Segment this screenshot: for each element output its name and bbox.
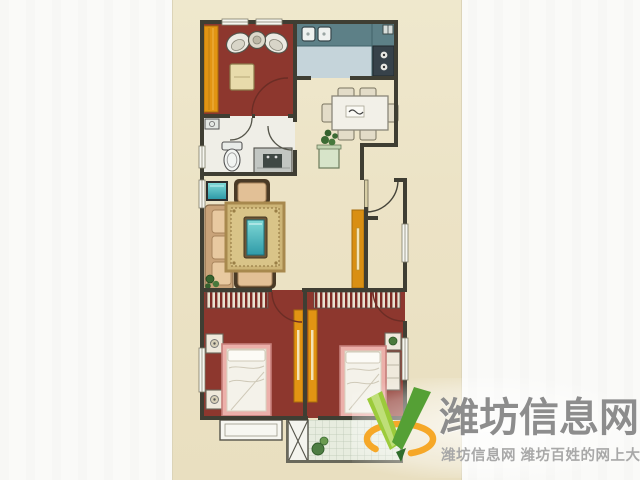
coffee-table-icon <box>244 217 267 258</box>
balcony <box>286 420 403 463</box>
nightstand-bottom-icon <box>206 390 223 409</box>
living-room <box>205 179 364 291</box>
study-window-2 <box>256 19 282 25</box>
nightstand-top-icon <box>206 334 223 353</box>
bedroom-left-window <box>199 348 205 392</box>
entry-foyer <box>365 180 399 212</box>
vanity-sink-icon <box>254 148 292 173</box>
curtain-strip-right <box>314 292 400 308</box>
balcony-rail <box>286 460 403 463</box>
bed-right-icon <box>340 346 386 418</box>
entry-door-arc <box>366 180 398 212</box>
appliance-icon <box>383 25 393 34</box>
study-wardrobe <box>204 26 218 112</box>
living-window <box>199 180 205 208</box>
screenshot-canvas: 潍坊信息网 潍坊信息网 潍坊百姓的网上大集 <box>0 0 640 480</box>
armchair-top-icon <box>234 179 270 205</box>
dresser-icon <box>386 352 400 390</box>
bed-left-icon <box>222 344 271 416</box>
bay-window <box>220 420 282 440</box>
stove-icon <box>373 46 394 76</box>
bedroom-right-window <box>402 338 408 380</box>
bathroom-window <box>199 146 205 168</box>
tv-icon <box>206 181 228 201</box>
hall-cabinet <box>352 210 364 288</box>
hallway-window <box>402 224 408 262</box>
small-basin-icon <box>205 119 219 129</box>
floorplan-drawing <box>0 0 640 480</box>
dining-plant-icon <box>317 130 341 168</box>
study-window-1 <box>222 19 248 25</box>
dining-area <box>317 88 398 168</box>
toilet-icon <box>222 142 242 171</box>
round-table-icon <box>249 32 266 49</box>
curtain-strip-left <box>206 292 268 308</box>
nightstand-right-icon <box>385 333 401 350</box>
